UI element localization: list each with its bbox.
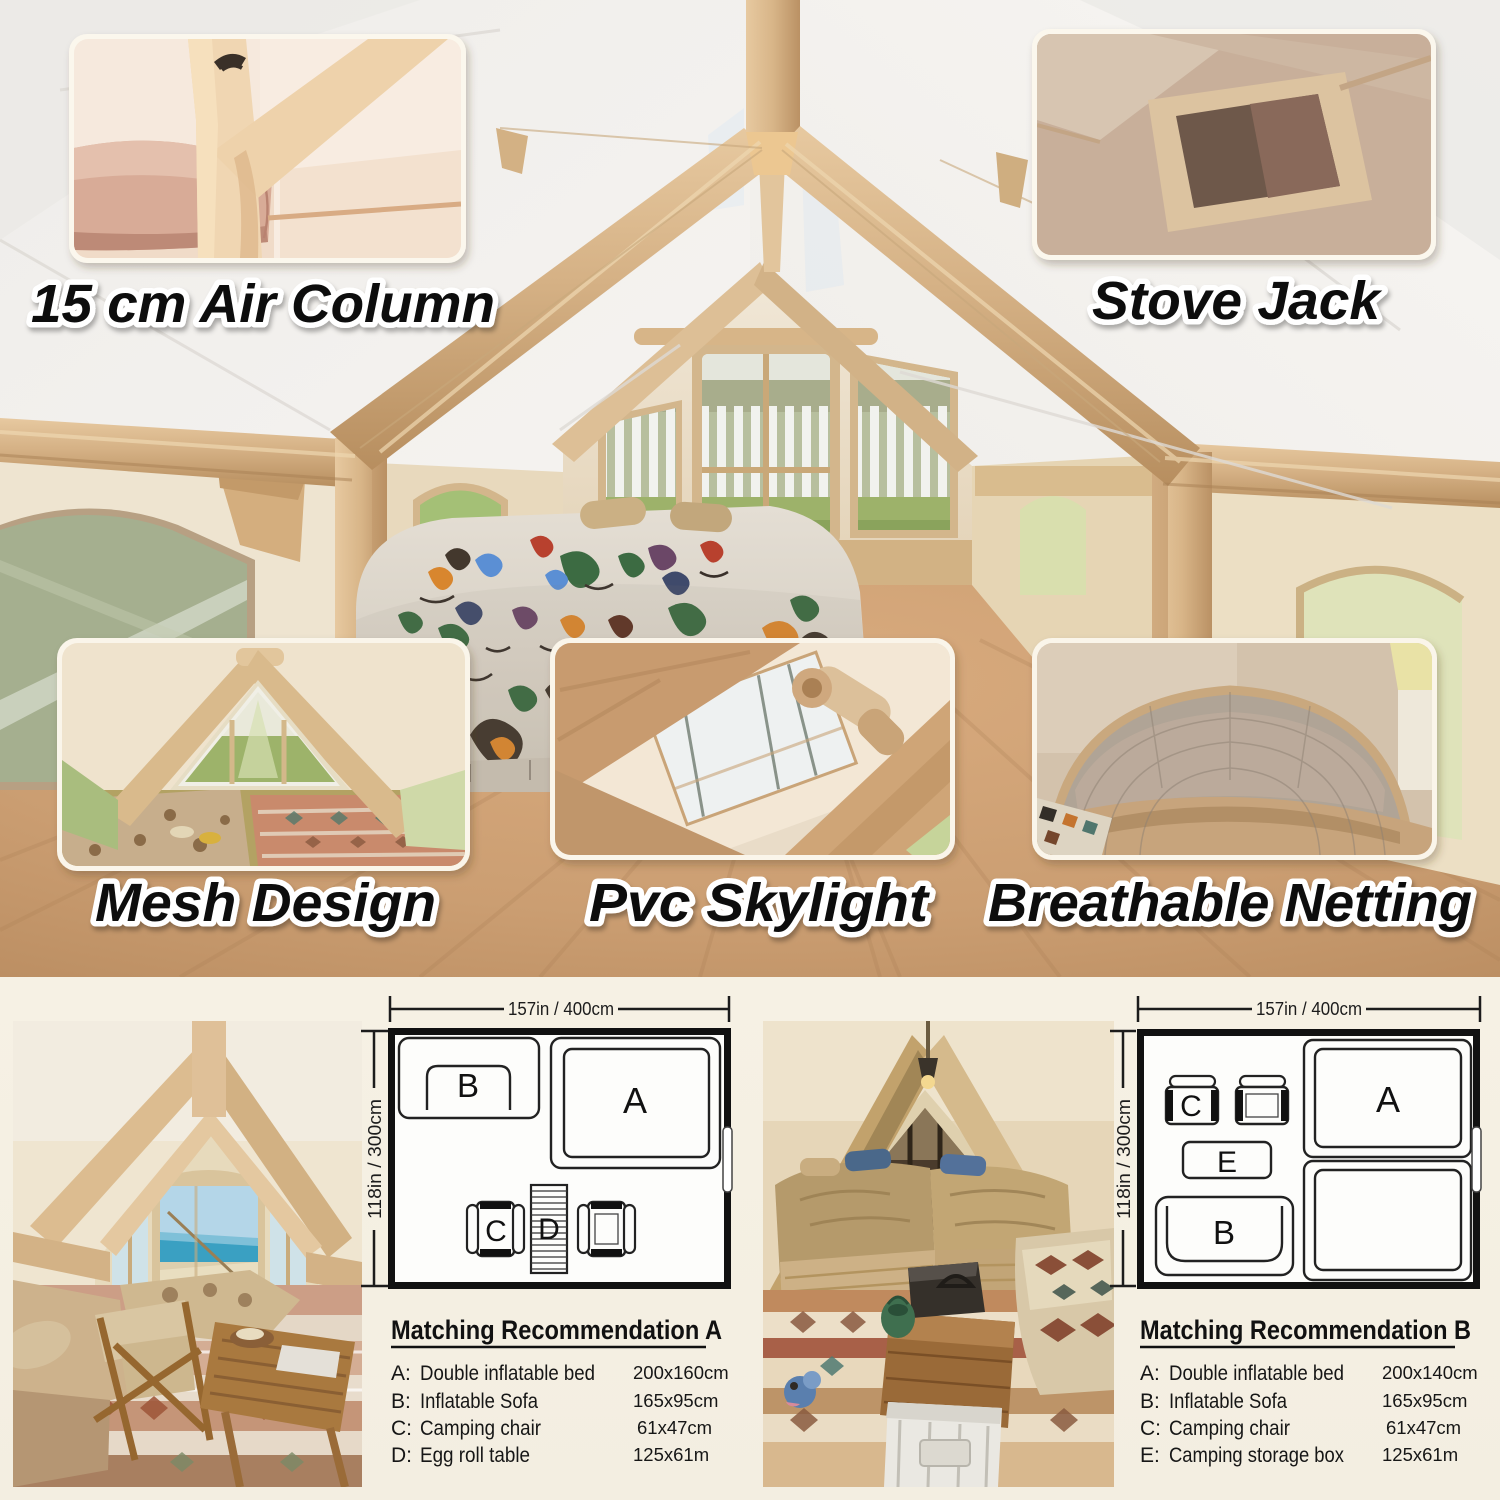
svg-text:15 cm Air Column: 15 cm Air Column xyxy=(31,274,495,334)
svg-text:200x160cm: 200x160cm xyxy=(633,1362,729,1383)
svg-text:61x47cm: 61x47cm xyxy=(1386,1417,1461,1438)
svg-text:A:: A: xyxy=(391,1362,411,1385)
svg-text:A:: A: xyxy=(1140,1362,1160,1385)
svg-text:B:: B: xyxy=(391,1390,411,1413)
svg-text:C:: C: xyxy=(391,1417,412,1440)
svg-text:B:: B: xyxy=(1140,1390,1160,1413)
svg-text:C: C xyxy=(1180,1090,1202,1123)
svg-text:61x47cm: 61x47cm xyxy=(637,1417,712,1438)
svg-text:Mesh Design: Mesh Design xyxy=(95,873,436,933)
svg-text:165x95cm: 165x95cm xyxy=(633,1390,718,1411)
svg-text:Double inflatable bed: Double inflatable bed xyxy=(1169,1362,1344,1385)
svg-text:Matching Recommendation B: Matching Recommendation B xyxy=(1140,1315,1471,1345)
svg-text:D:: D: xyxy=(391,1444,412,1467)
svg-text:E: E xyxy=(1217,1146,1237,1179)
svg-text:Inflatable Sofa: Inflatable Sofa xyxy=(420,1390,538,1413)
svg-text:Egg roll table: Egg roll table xyxy=(420,1444,530,1467)
svg-text:Stove Jack: Stove Jack xyxy=(1092,271,1383,331)
svg-text:Pvc Skylight: Pvc Skylight xyxy=(589,873,930,933)
svg-text:A: A xyxy=(623,1080,647,1121)
svg-text:165x95cm: 165x95cm xyxy=(1382,1390,1467,1411)
svg-text:Camping chair: Camping chair xyxy=(420,1417,541,1440)
svg-text:Breathable Netting: Breathable Netting xyxy=(988,873,1472,933)
svg-text:A: A xyxy=(1376,1079,1400,1120)
svg-text:B: B xyxy=(457,1067,479,1104)
svg-text:Double inflatable bed: Double inflatable bed xyxy=(420,1362,595,1385)
svg-text:Camping chair: Camping chair xyxy=(1169,1417,1290,1440)
svg-text:118in / 300cm: 118in / 300cm xyxy=(1113,1099,1134,1219)
svg-text:157in / 400cm: 157in / 400cm xyxy=(508,998,614,1019)
svg-text:C: C xyxy=(485,1215,507,1248)
svg-text:157in / 400cm: 157in / 400cm xyxy=(1256,998,1362,1019)
svg-text:D: D xyxy=(538,1213,560,1246)
svg-text:125x61m: 125x61m xyxy=(1382,1444,1458,1465)
svg-text:B: B xyxy=(1213,1214,1235,1251)
svg-text:C:: C: xyxy=(1140,1417,1161,1440)
svg-text:Camping storage box: Camping storage box xyxy=(1169,1444,1344,1467)
svg-text:200x140cm: 200x140cm xyxy=(1382,1362,1478,1383)
svg-text:E:: E: xyxy=(1140,1444,1160,1467)
svg-text:125x61m: 125x61m xyxy=(633,1444,709,1465)
svg-text:Inflatable Sofa: Inflatable Sofa xyxy=(1169,1390,1287,1413)
svg-text:Matching Recommendation A: Matching Recommendation A xyxy=(391,1315,722,1345)
svg-text:118in / 300cm: 118in / 300cm xyxy=(364,1099,385,1219)
